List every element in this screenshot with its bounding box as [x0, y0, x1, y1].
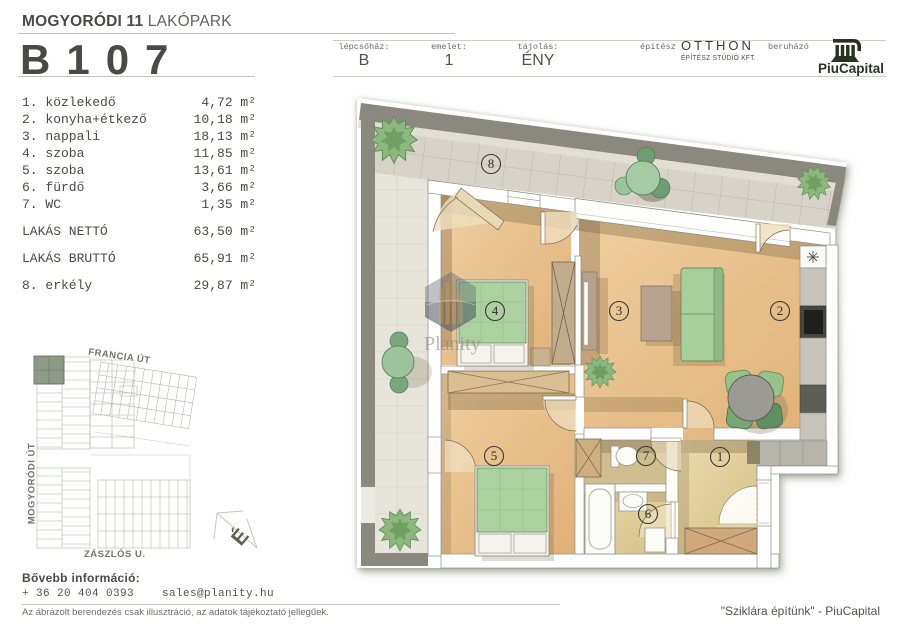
svg-text:4: 4	[492, 303, 499, 318]
svg-text:Planity: Planity	[424, 333, 481, 355]
svg-text:5: 5	[491, 448, 498, 463]
svg-text:2: 2	[777, 303, 784, 318]
svg-text:8: 8	[488, 156, 495, 171]
svg-text:3: 3	[616, 303, 623, 318]
svg-text:1: 1	[717, 449, 724, 464]
svg-text:7: 7	[643, 448, 650, 463]
svg-text:6: 6	[645, 506, 652, 521]
